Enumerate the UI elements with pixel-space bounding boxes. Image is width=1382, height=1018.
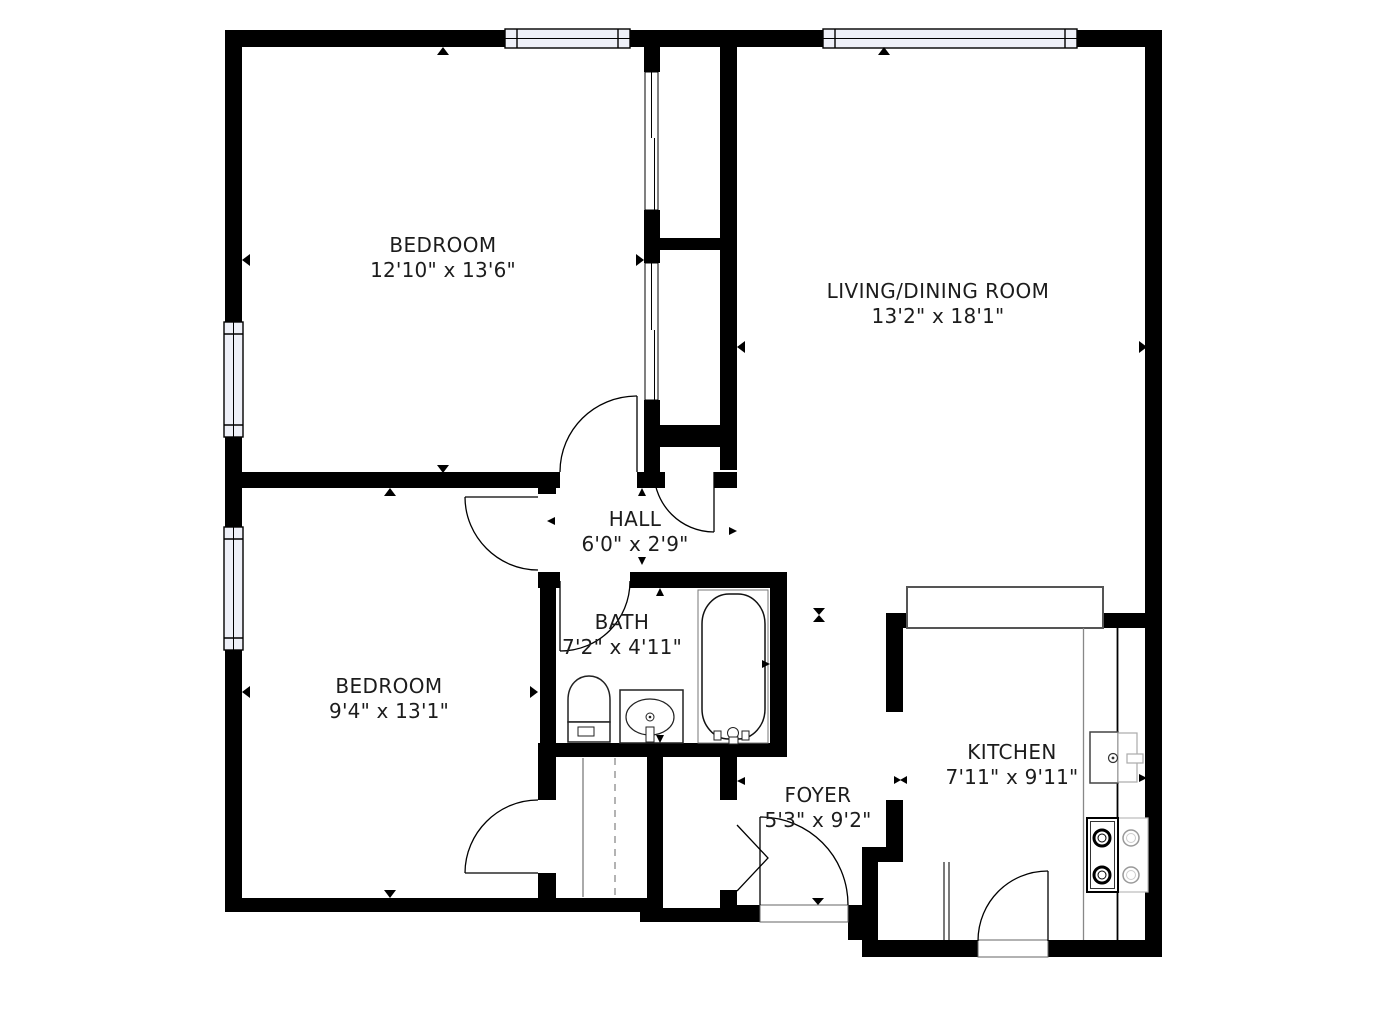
dim-arrow-right: [894, 776, 901, 784]
room-dims: 7'11" x 9'11": [946, 765, 1079, 790]
wall: [720, 890, 737, 922]
wall: [538, 572, 560, 588]
entry-threshold: [760, 905, 848, 922]
sink-vanity-icon: [620, 690, 683, 743]
room-dims: 6'0" x 2'9": [581, 532, 688, 557]
wall: [644, 47, 660, 72]
dim-arrow-right: [530, 686, 538, 698]
wall: [538, 757, 556, 800]
dim-arrow-up: [384, 488, 396, 496]
window-bedroom2-left: [224, 527, 243, 650]
window-shaft-lower: [645, 263, 658, 400]
sink-faucet: [646, 727, 654, 742]
walls: [225, 30, 1162, 957]
room-name: BEDROOM: [370, 233, 516, 258]
wall: [1103, 613, 1147, 628]
door-bedroom1: [560, 396, 637, 472]
toilet-handle: [578, 727, 594, 736]
wall: [225, 650, 242, 912]
wall: [630, 572, 787, 588]
window-bedroom1-top: [505, 29, 630, 48]
dim-arrow-down: [813, 608, 825, 615]
wall: [714, 472, 737, 488]
wall: [862, 940, 978, 957]
wall: [644, 210, 660, 263]
wall: [660, 238, 737, 250]
dim-arrow-left: [737, 341, 745, 353]
room-dims: 13'2" x 18'1": [827, 304, 1050, 329]
dim-arrow-down: [437, 465, 449, 473]
bifold-door-foyer-closet: [737, 825, 768, 891]
dim-arrow-down: [384, 890, 396, 898]
wall: [225, 30, 505, 47]
door-bedroom2-closet: [465, 800, 538, 873]
wall: [538, 488, 556, 494]
wall: [862, 862, 878, 957]
wall: [720, 47, 737, 470]
dim-arrow-left: [242, 686, 250, 698]
wall: [637, 472, 665, 488]
dim-arrow-right: [636, 254, 644, 266]
room-dims: 12'10" x 13'6": [370, 258, 516, 283]
dim-arrow-up: [813, 615, 825, 622]
room-label-bedroom-1: BEDROOM 12'10" x 13'6": [370, 233, 516, 283]
kitchen-service-threshold: [978, 940, 1048, 957]
wall: [225, 30, 242, 322]
window-bedroom1-left: [224, 322, 243, 437]
wall: [862, 847, 903, 862]
wall: [225, 898, 645, 912]
wall: [630, 30, 823, 47]
room-name: LIVING/DINING ROOM: [827, 279, 1050, 304]
wall: [770, 572, 787, 757]
wall: [720, 757, 737, 800]
dim-arrow-left: [547, 517, 555, 525]
room-label-bedroom-2: BEDROOM 9'4" x 13'1": [329, 674, 449, 724]
room-dims: 7'2" x 4'11": [562, 635, 682, 660]
wall: [647, 757, 663, 902]
dim-arrow-up: [638, 488, 646, 496]
room-label-foyer: FOYER 5'3" x 9'2": [764, 783, 871, 833]
room-label-hall: HALL 6'0" x 2'9": [581, 507, 688, 557]
stove-icon: [1087, 818, 1148, 892]
window-shaft-upper: [645, 72, 658, 210]
dim-arrow-left: [737, 777, 745, 785]
dim-arrow-down: [638, 557, 646, 565]
floor-plan-drawing: [0, 0, 1382, 1018]
room-label-kitchen: KITCHEN 7'11" x 9'11": [946, 740, 1079, 790]
wall: [1048, 940, 1162, 957]
kitchen-sink-icon: [1090, 732, 1143, 783]
sink-handle: [1127, 754, 1143, 763]
wall: [242, 472, 538, 488]
wall: [538, 472, 560, 488]
room-name: BATH: [562, 610, 682, 635]
wall: [660, 425, 720, 447]
wall: [225, 437, 242, 527]
wall: [737, 905, 760, 922]
door-kitchen-service: [978, 871, 1048, 941]
room-label-living-dining: LIVING/DINING ROOM 13'2" x 18'1": [827, 279, 1050, 329]
dim-arrow-left: [900, 776, 907, 784]
room-label-bath: BATH 7'2" x 4'11": [562, 610, 682, 660]
bathtub-icon: [698, 590, 768, 744]
dim-arrow-right: [729, 527, 737, 535]
wall: [538, 873, 556, 900]
floor-plan: BEDROOM 12'10" x 13'6" LIVING/DINING ROO…: [0, 0, 1382, 1018]
room-name: KITCHEN: [946, 740, 1079, 765]
dim-arrow-left: [242, 254, 250, 266]
wall: [538, 743, 787, 757]
room-dims: 9'4" x 13'1": [329, 699, 449, 724]
wall: [886, 613, 907, 628]
wall: [644, 400, 660, 472]
room-name: HALL: [581, 507, 688, 532]
room-name: FOYER: [764, 783, 871, 808]
window-living-top: [823, 29, 1077, 48]
door-bedroom2: [465, 497, 538, 570]
dim-arrow-up: [437, 47, 449, 55]
room-dims: 5'3" x 9'2": [764, 808, 871, 833]
toilet-icon: [568, 676, 610, 742]
dim-arrow-right: [762, 660, 770, 668]
counter-peninsula: [907, 587, 1103, 628]
room-name: BEDROOM: [329, 674, 449, 699]
dim-arrow-up: [656, 588, 664, 596]
dim-arrow-down: [812, 898, 824, 905]
